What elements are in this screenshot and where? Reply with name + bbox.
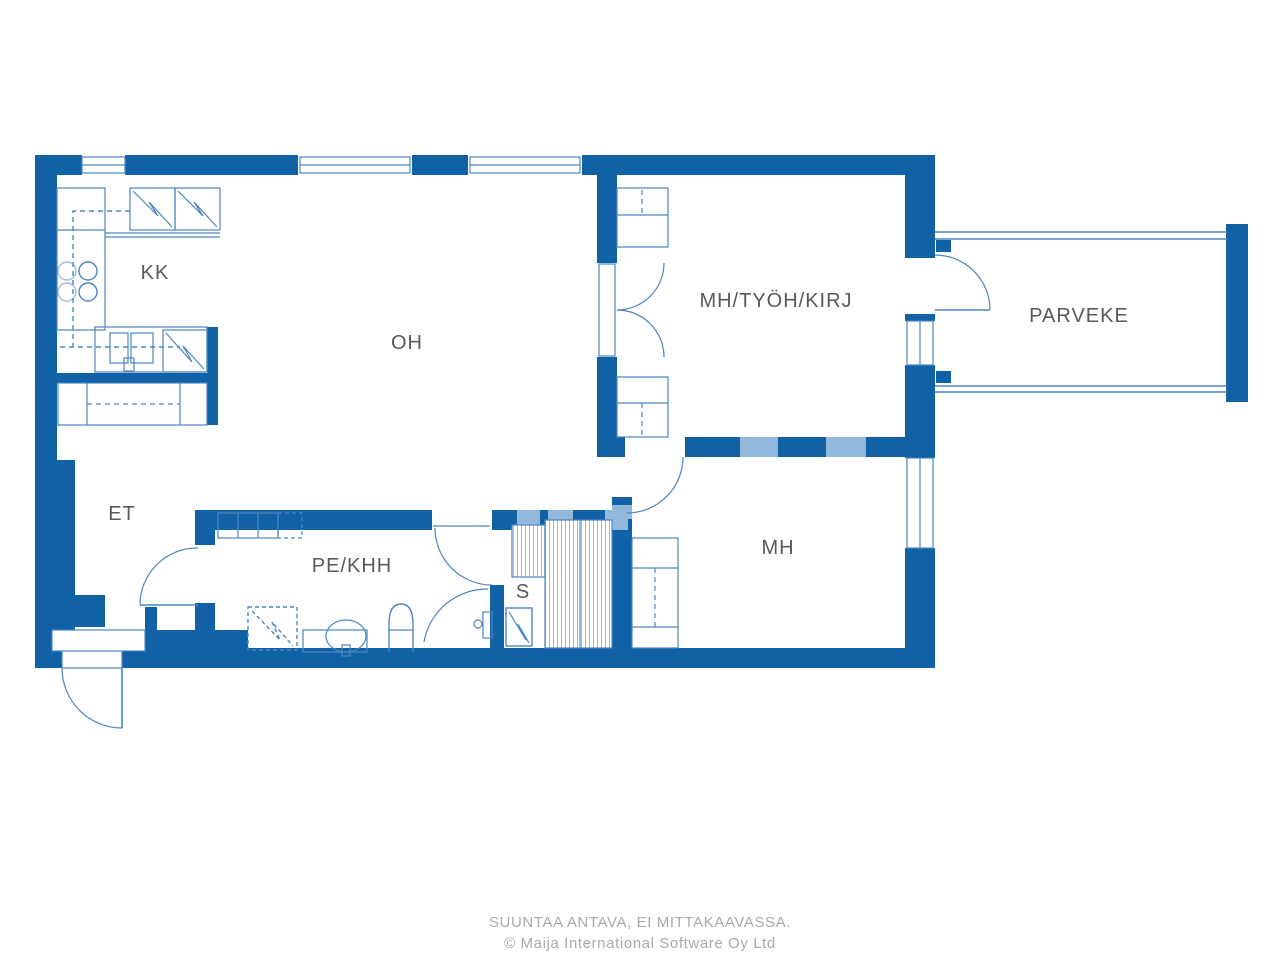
kitchen-counter-left [57,188,105,330]
label-kitchen: KK [141,262,170,284]
utility-door-et [140,548,198,605]
multi-double-door [599,263,664,357]
wall-et-stub [145,607,157,652]
floorplan-drawing: KK OH MH/TYÖH/KIRJ PARVEKE ET PE/KHH S M… [0,0,1280,960]
sauna-heater [506,608,532,646]
wall-kk-et [57,373,218,383]
et-closet [58,383,207,425]
mh-door [627,457,683,513]
balcony-rail-end [1226,224,1248,402]
wall-left [35,155,57,668]
footer-disclaimer: SUUNTAA ANTAVA, EI MITTAKAAVASSA. [489,914,791,931]
opening-mh-door [625,437,685,457]
multi-top-closet [617,188,668,247]
label-utility: PE/KHH [312,555,392,577]
wall-et-step [157,630,248,652]
footer: SUUNTAA ANTAVA, EI MITTAKAAVASSA. © Maij… [489,914,791,952]
opening-utility-door-left [195,545,215,603]
opening-utility-door-top [432,510,492,530]
balcony-anchor-bottom [936,371,951,383]
multi-bottom-closet [617,377,668,437]
label-living: OH [391,332,423,354]
kitchen-upper-cabinets [105,188,220,237]
wall-utility-left-b [195,603,215,633]
wall-et-column [57,595,105,627]
et-bench [52,630,145,651]
label-sauna: S [516,581,530,603]
wall-kk-stub [207,327,218,425]
stove [58,262,97,301]
label-entry: ET [108,503,136,525]
floorplan-page: KK OH MH/TYÖH/KIRJ PARVEKE ET PE/KHH S M… [0,0,1280,960]
label-balcony: PARVEKE [1029,305,1129,327]
toilet [389,604,413,652]
footer-copyright: © Maija International Software Oy Ltd [504,935,776,952]
balcony-anchor-top [936,240,951,252]
opening-entrance [62,650,122,668]
kitchen-sink-counter [95,327,207,372]
shower-mixer [474,612,492,638]
mh-closet [632,538,678,648]
balcony-door [935,255,990,310]
label-multi: MH/TYÖH/KIRJ [699,290,852,312]
label-bedroom: MH [761,537,794,559]
wall-utility-left-a [195,510,215,545]
wall-right [905,155,935,668]
opening-balcony-door [905,258,935,314]
washing-machine [248,607,297,650]
